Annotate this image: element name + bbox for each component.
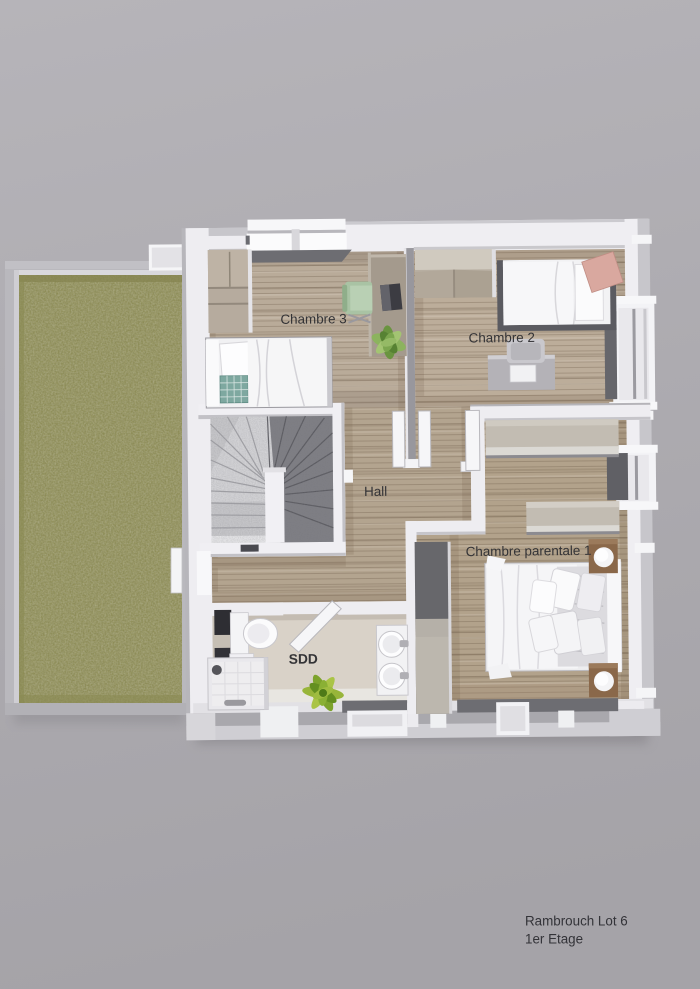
- svg-text:Chambre 2: Chambre 2: [469, 330, 535, 346]
- svg-text:Hall: Hall: [364, 484, 387, 499]
- svg-text:Chambre 3: Chambre 3: [280, 311, 346, 327]
- svg-text:SDD: SDD: [289, 651, 318, 666]
- svg-text:Rambrouch Lot 6: Rambrouch Lot 6: [525, 914, 628, 929]
- svg-text:Chambre parentale 1: Chambre parentale 1: [466, 543, 592, 559]
- svg-text:1er Etage: 1er Etage: [525, 932, 583, 947]
